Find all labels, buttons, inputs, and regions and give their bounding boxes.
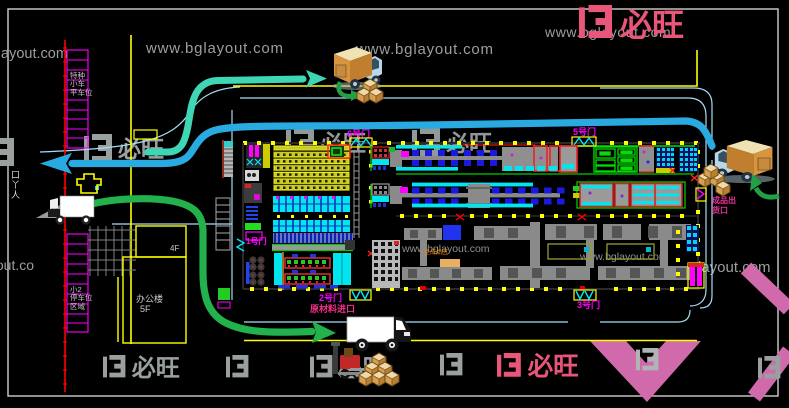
svg-text:至成品区: 至成品区 (424, 248, 448, 256)
svg-text:停车位: 停车位 (70, 292, 93, 302)
svg-text:平车位: 平车位 (70, 87, 93, 97)
svg-text:必旺: 必旺 (620, 7, 684, 43)
svg-text:必旺: 必旺 (528, 353, 579, 381)
svg-text:区域: 区域 (70, 301, 85, 311)
svg-text:5号门: 5号门 (573, 126, 596, 137)
svg-text:5F: 5F (140, 304, 151, 314)
svg-text:小车: 小车 (70, 78, 85, 88)
svg-text:成品出: 成品出 (712, 195, 736, 205)
svg-text:货口: 货口 (711, 205, 728, 215)
svg-text:必旺: 必旺 (132, 355, 180, 382)
svg-text:丫: 丫 (11, 180, 20, 190)
svg-text:2号门: 2号门 (319, 292, 342, 303)
svg-text:办公楼: 办公楼 (136, 293, 163, 304)
svg-text:人: 人 (11, 190, 20, 200)
svg-text:3号门: 3号门 (577, 299, 600, 310)
svg-text:口: 口 (11, 170, 20, 180)
svg-text:4F: 4F (170, 244, 179, 253)
svg-text:6号门: 6号门 (347, 128, 370, 139)
svg-text:原材料进口: 原材料进口 (310, 303, 355, 314)
svg-text:www.bglayout.com: www.bglayout.com (145, 40, 284, 57)
svg-text:1号门: 1号门 (246, 236, 266, 246)
svg-text:www.bglayout.com: www.bglayout.com (355, 41, 494, 58)
svg-text:ayout.com: ayout.com (1, 46, 68, 62)
svg-text:layout.co: layout.co (0, 257, 34, 273)
